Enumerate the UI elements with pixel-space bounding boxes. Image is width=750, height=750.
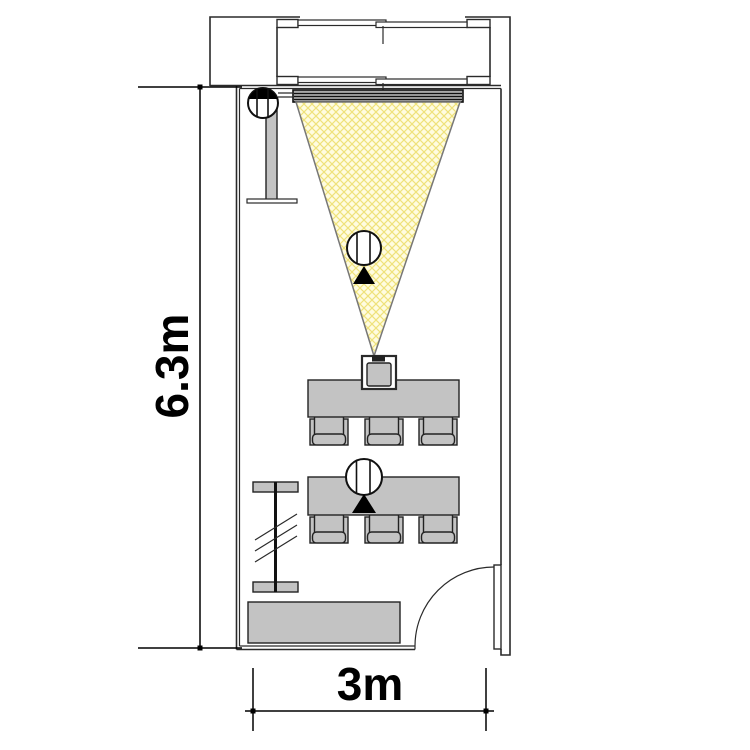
camera-body [346,459,382,495]
window-panel [376,79,467,85]
dimension-horizontal: 3m [245,658,494,731]
chair-back [422,532,455,543]
chair [310,514,348,543]
chair-back [313,434,346,445]
chair [419,416,457,445]
wall-right-outer [465,17,510,655]
camera-body [347,231,381,265]
chair-back [313,532,346,543]
projector-lens [372,356,385,362]
chair-seat [315,514,344,533]
radiator [253,482,298,592]
dimension-tick [251,709,256,714]
dimension-tick [198,646,203,651]
chair-back [422,434,455,445]
projection-screen [293,90,463,102]
floor-plan: 6.3m 3m [0,0,750,750]
window-panel [298,77,386,83]
stand-mount-lines [278,93,293,97]
projector-body [367,363,391,386]
chair-seat [370,514,399,533]
chair-seat [424,416,453,435]
window-panel [298,20,386,26]
window-end-block [467,20,490,28]
dimension-vertical: 6.3m [138,85,242,651]
window-end-block [277,20,298,28]
window-end-block [467,77,490,85]
meeting-table-2 [308,477,459,515]
room-width-label: 3m [337,658,403,710]
floor-plan-canvas: 6.3m 3m [0,0,750,750]
window-panel [376,22,467,28]
chair [310,416,348,445]
dimension-tick [198,85,203,90]
door [415,565,501,649]
dimension-tick [484,709,489,714]
camera-direction-semicircle [249,89,278,99]
flipchart-stand-base [247,199,297,203]
chair-seat [315,416,344,435]
chair-back [368,434,401,445]
camera-symbol-top-left [248,88,278,118]
chair-back [368,532,401,543]
sideboard [248,602,400,643]
room-height-label: 6.3m [146,314,198,419]
chair [365,514,403,543]
window-bay [277,20,490,92]
door-swing-arc [415,567,494,646]
window-end-block [277,77,298,85]
chair-seat [370,416,399,435]
chair [365,416,403,445]
chair-seat [424,514,453,533]
projection-cone [296,102,460,356]
projector [362,356,396,390]
chair [419,514,457,543]
door-leaf [494,565,501,649]
